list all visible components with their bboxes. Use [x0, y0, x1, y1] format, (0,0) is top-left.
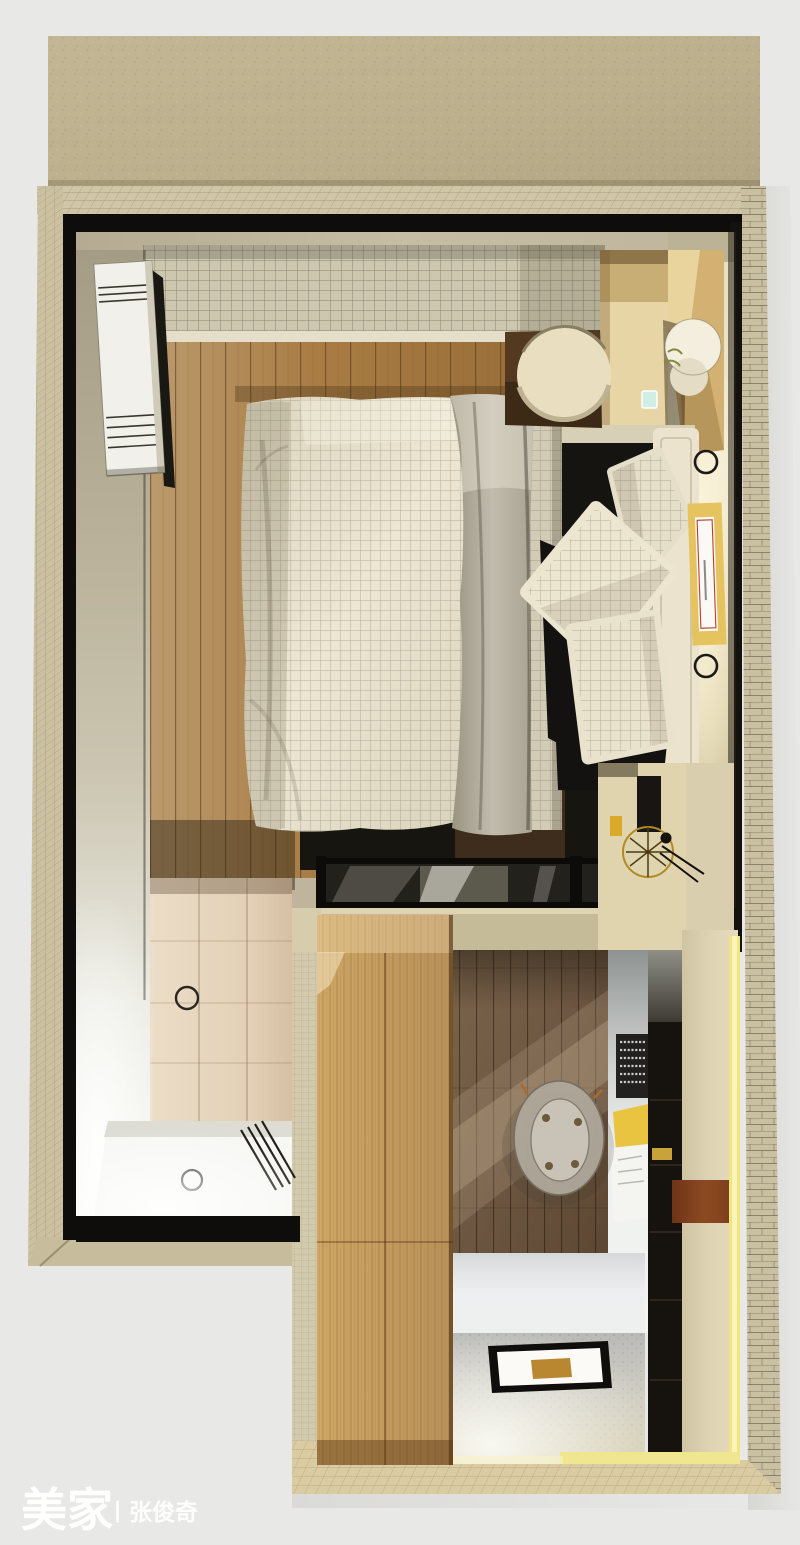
svg-text:丨张俊奇: 丨张俊奇 — [106, 1499, 198, 1525]
svg-text:美家: 美家 — [21, 1484, 113, 1536]
